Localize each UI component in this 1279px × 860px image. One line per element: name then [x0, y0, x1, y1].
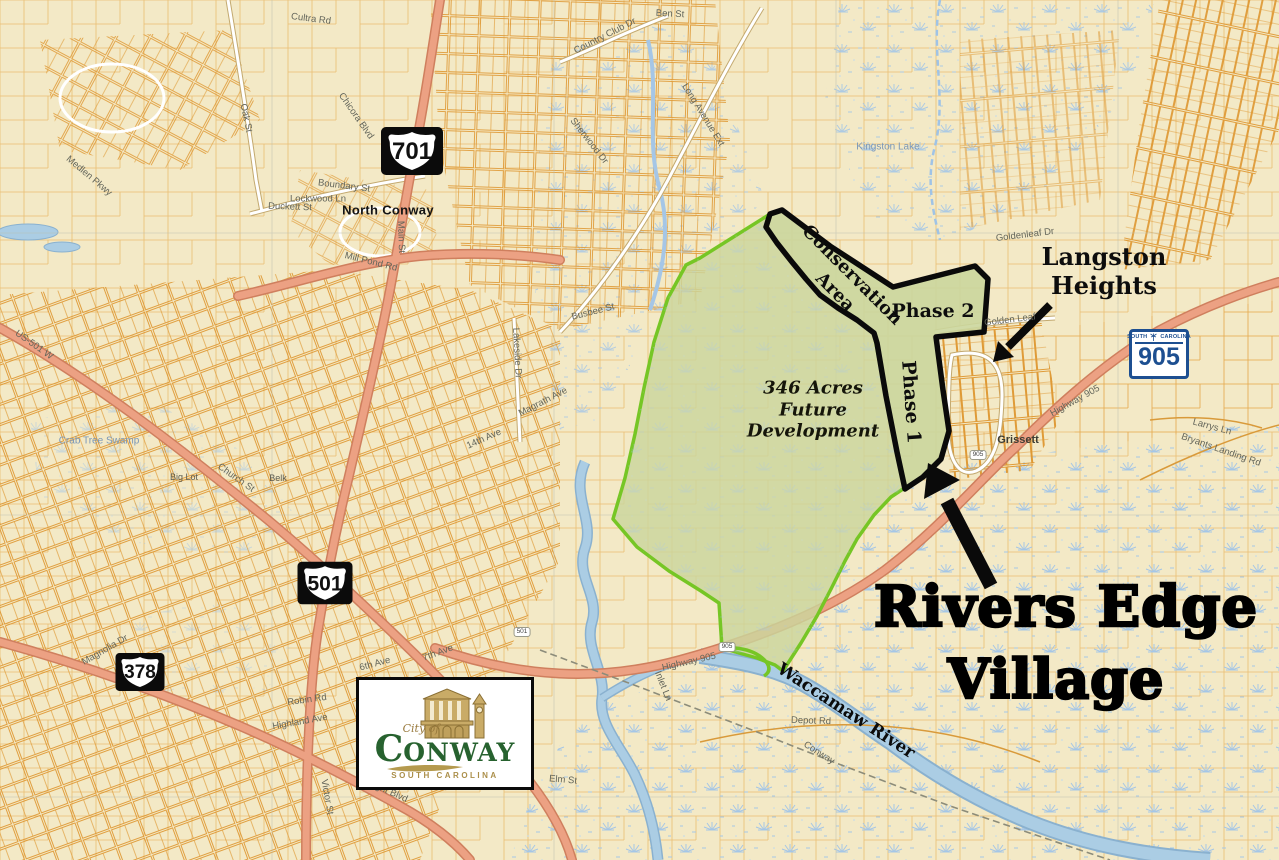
sc-route-905-shield: SOUTH CAROLINA 905 [1129, 329, 1189, 379]
logo-city-of: City of [403, 722, 440, 735]
logo-name: ONWAY [403, 738, 515, 767]
logo-state: SOUTH CAROLINA [391, 771, 498, 780]
logo-initial: C [375, 728, 404, 770]
palmetto-icon [1149, 333, 1158, 341]
route-marker-905: 905 [719, 642, 736, 652]
route-marker-905: 905 [970, 450, 987, 460]
route-marker-501: 501 [514, 627, 531, 637]
map-canvas [0, 0, 1279, 860]
map-screenshot: North Conway Grissett Kingston Lake Crab… [0, 0, 1279, 860]
rivers-edge-village-title-line2: Village [948, 647, 1165, 711]
us-route-701-shield: 701 [381, 127, 443, 175]
city-of-conway-logo: City of C ONWAY SOUTH CAROLINA [356, 677, 534, 790]
us-route-501-shield: 501 [298, 561, 353, 606]
us-route-378-shield: 378 [116, 652, 165, 692]
rivers-edge-village-title-line1: Rivers Edge [874, 574, 1258, 640]
